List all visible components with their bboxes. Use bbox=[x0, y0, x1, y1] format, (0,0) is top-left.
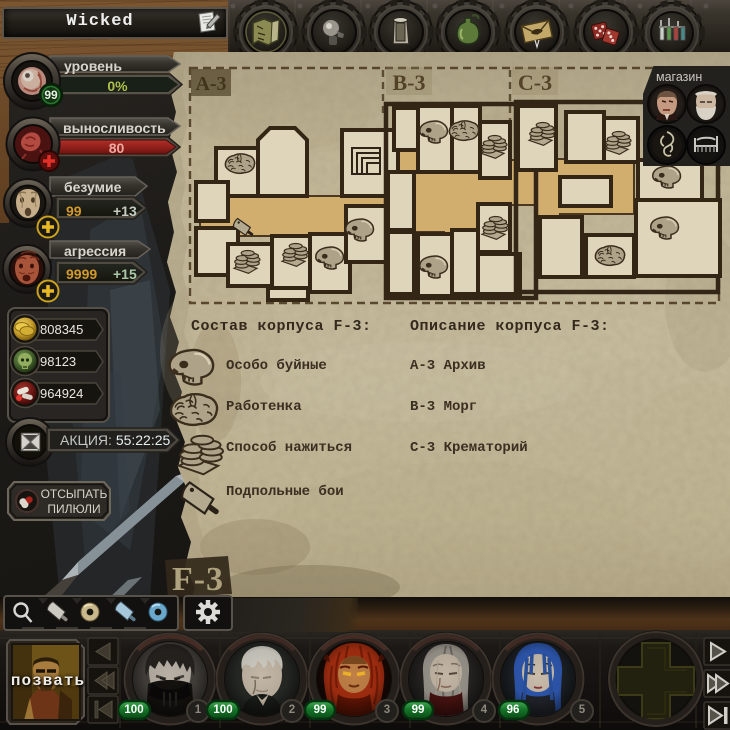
svg-text:B-3: B-3 bbox=[393, 70, 426, 95]
svg-text:C-3: C-3 bbox=[518, 70, 552, 95]
